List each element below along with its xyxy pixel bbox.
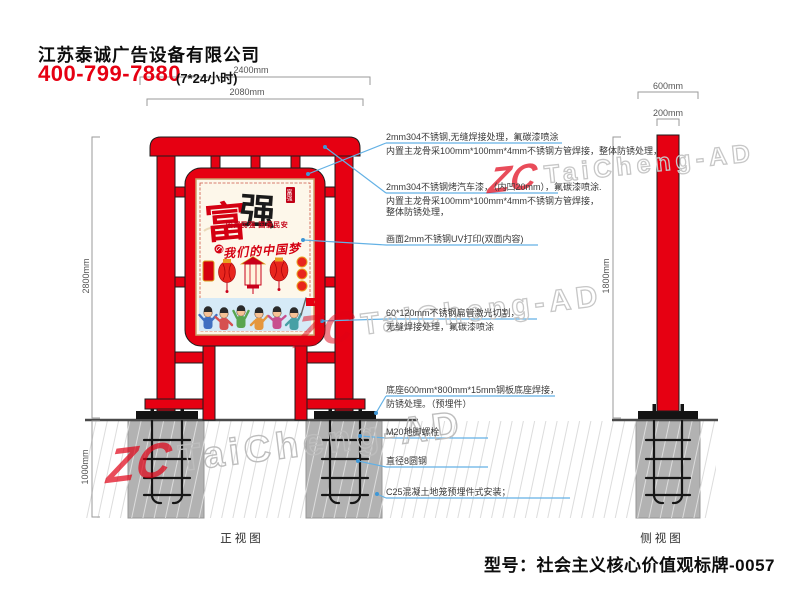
seal-text: 富强	[285, 188, 292, 202]
annotation-line: 内置主龙骨采100mm*100mm*4mm不锈钢方管焊接，整体防锈处理，	[386, 146, 662, 158]
dim-label-foundation-depth: 1000mm	[80, 437, 90, 497]
annotation-line: 2mm304不锈钢,无缝焊接处理，氟碳漆喷涂	[386, 132, 662, 144]
annotation-line: 内置主龙骨采100mm*100mm*4mm不锈钢方管焊接，	[386, 196, 602, 208]
dim-label-inner-width: 2080mm	[217, 87, 277, 97]
dim-label-side-height: 1800mm	[601, 246, 611, 306]
annotation-inner-frame: 2mm304不锈钢烤汽车漆，（内凹20mm），氟碳漆喷涂. 内置主龙骨采100m…	[386, 182, 602, 219]
annotation-uv-print: 画面2mm不锈钢UV打印(双面内容)	[386, 234, 524, 248]
annotation-base-plate: 底座600mm*800mm*15mm钢板底座焊接， 防锈处理。（预埋件）	[386, 385, 559, 410]
annotation-line: 底座600mm*800mm*15mm钢板底座焊接，	[386, 385, 559, 397]
annotation-line: 防锈处理。（预埋件）	[386, 399, 559, 411]
annotation-line: M20地脚螺栓	[386, 427, 440, 439]
annotation-concrete: C25混凝土地笼预埋件式安装；	[386, 487, 511, 501]
dim-label-base-width: 600mm	[638, 81, 698, 91]
dim-label-height: 2800mm	[81, 246, 91, 306]
dim-label-outer-width: 2400mm	[221, 65, 281, 75]
annotation-line: C25混凝土地笼预埋件式安装；	[386, 487, 511, 499]
dim-label-pole-width: 200mm	[638, 108, 698, 118]
side-pole	[657, 135, 679, 411]
annotation-line: 直径8圆钢	[386, 456, 427, 468]
annotation-line: 画面2mm不锈钢UV打印(双面内容)	[386, 234, 524, 246]
annotation-round-steel: 直径8圆钢	[386, 456, 427, 470]
annotation-flat-tube: 60*120mm不锈钢扁管激光切割， 无缝焊接处理，氟碳漆喷涂	[386, 308, 520, 333]
front-view-label: 正视图	[202, 530, 282, 546]
blueprint-canvas: 富 强 富强 国富民强 国泰民安 我们的中国梦	[0, 0, 800, 600]
annotation-anchor-bolt: M20地脚螺栓	[386, 427, 440, 441]
poster-subtitle: 国富民强 国泰民安	[226, 220, 288, 229]
annotation-line: 60*120mm不锈钢扁管激光切割，	[386, 308, 520, 320]
annotation-line: 2mm304不锈钢烤汽车漆，（内凹20mm），氟碳漆喷涂.	[386, 182, 602, 194]
annotation-line: 无缝焊接处理，氟碳漆喷涂	[386, 322, 520, 334]
phone-number: 400-799-7880	[38, 61, 181, 87]
annotation-line: 整体防锈处理，	[386, 207, 602, 219]
side-view-label: 侧视图	[622, 530, 702, 546]
annotation-outer-frame: 2mm304不锈钢,无缝焊接处理，氟碳漆喷涂 内置主龙骨采100mm*100mm…	[386, 132, 662, 157]
model-number: 型号：社会主义核心价值观标牌-0057	[484, 551, 775, 576]
